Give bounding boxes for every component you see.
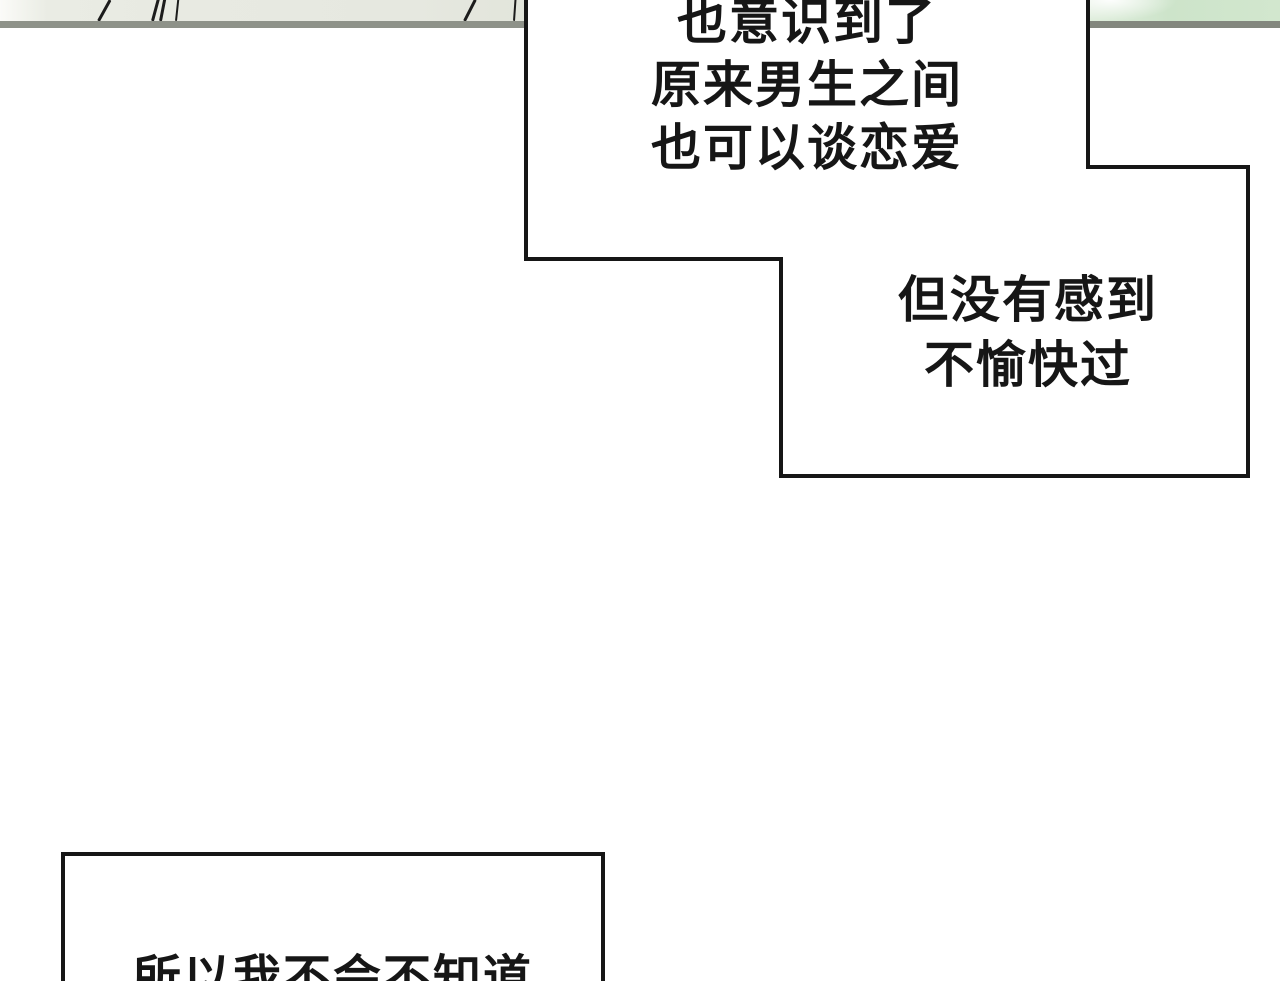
- stem-line-icon: [97, 0, 111, 22]
- speech-box-border-step-left: [779, 257, 783, 478]
- speech-line: 也意识到了: [524, 0, 1090, 54]
- top-panel-scene-left: [0, 0, 527, 21]
- stem-line-icon: [175, 0, 179, 21]
- speech-box-border-step-bottom: [524, 257, 783, 261]
- stem-line-icon: [463, 0, 477, 22]
- speech-line: 原来男生之间: [524, 54, 1090, 117]
- speech-line: 也可以谈恋爱: [524, 117, 1090, 180]
- speech-box-border-step-top: [1086, 165, 1250, 169]
- speech-text-right: 但没有感到 不愉快过: [794, 268, 1262, 398]
- speech-line: 所以我不会不知道: [65, 948, 601, 981]
- speech-text-top: 也意识到了 原来男生之间 也可以谈恋爱: [524, 0, 1090, 180]
- comic-page: 也意识到了 原来男生之间 也可以谈恋爱 但没有感到 不愉快过 所以我不会不知道: [0, 0, 1280, 981]
- speech-text-bottom: 所以我不会不知道: [65, 948, 601, 981]
- speech-line: 但没有感到: [794, 268, 1262, 333]
- stem-line-icon: [513, 0, 517, 21]
- top-panel-edge-right: [1088, 21, 1280, 28]
- top-panel-edge-left: [0, 21, 527, 28]
- speech-box-border-bottom: [779, 474, 1250, 478]
- stem-line-icon: [159, 0, 167, 21]
- top-panel-scene-right: [1088, 0, 1280, 21]
- speech-line: 不愉快过: [794, 333, 1262, 398]
